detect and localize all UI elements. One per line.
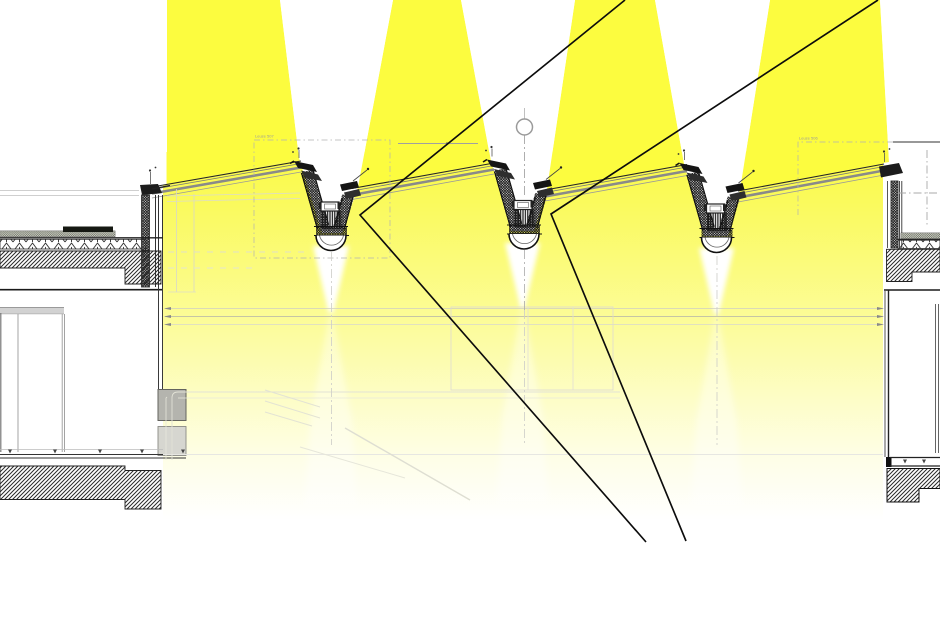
svg-text:Leuze 507: Leuze 507	[255, 134, 274, 139]
svg-text:Leuze 506: Leuze 506	[799, 136, 818, 141]
